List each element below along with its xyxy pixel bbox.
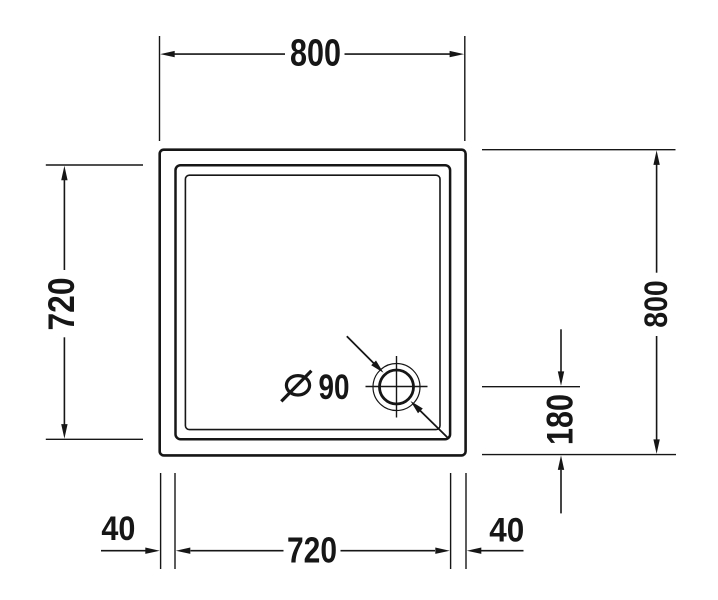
svg-text:800: 800 <box>290 32 341 74</box>
svg-text:180: 180 <box>540 394 581 445</box>
svg-text:40: 40 <box>489 512 524 550</box>
svg-text:40: 40 <box>101 510 135 548</box>
svg-text:720: 720 <box>287 529 337 570</box>
svg-text:90: 90 <box>319 368 350 407</box>
svg-text:800: 800 <box>638 280 674 328</box>
svg-text:720: 720 <box>41 278 82 331</box>
